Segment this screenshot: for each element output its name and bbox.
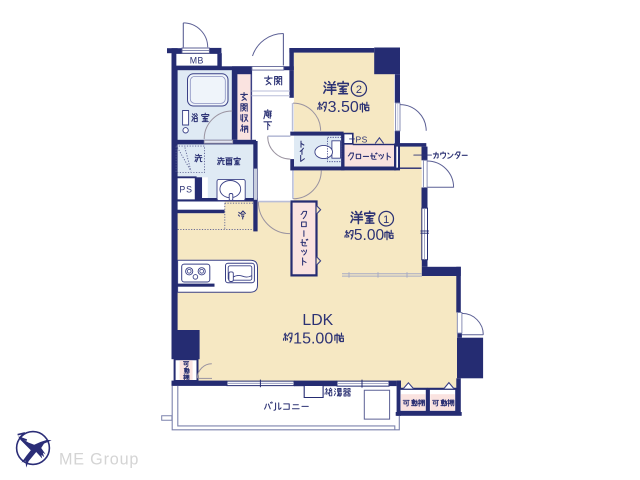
svg-text:15.00: 15.00 xyxy=(293,330,333,347)
svg-text:LDK: LDK xyxy=(302,312,333,329)
svg-text:5.00: 5.00 xyxy=(354,227,385,244)
svg-text:PS: PS xyxy=(356,134,368,144)
svg-text:MB: MB xyxy=(190,55,204,65)
svg-text:1: 1 xyxy=(383,214,389,226)
svg-text:ME Group: ME Group xyxy=(59,451,139,469)
svg-text:PS: PS xyxy=(179,185,193,195)
svg-text:3.50: 3.50 xyxy=(328,99,359,116)
svg-text:2: 2 xyxy=(356,84,362,96)
